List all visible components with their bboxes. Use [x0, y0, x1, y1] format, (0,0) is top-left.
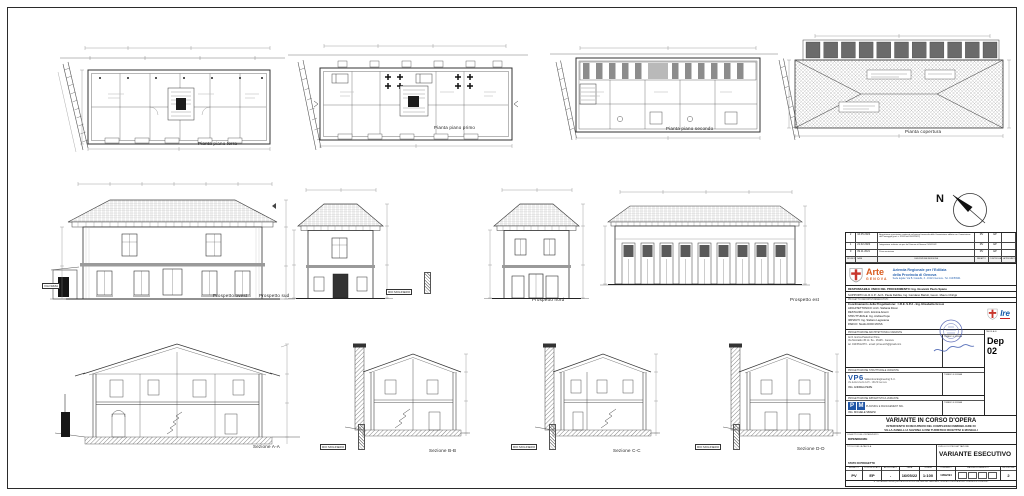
- rev-controllato: EP: [989, 243, 1003, 249]
- plan-first-floor-drawing: [288, 28, 528, 153]
- compass-n-letter: N: [936, 193, 944, 205]
- rio-molinero-label: RIO MOLINERO: [695, 444, 721, 450]
- stato-progetto-label: STATO DI PROGETTO: [846, 462, 936, 466]
- rio-molinero-label: RIO MOLINERO: [320, 444, 346, 450]
- caption-plan-roof: Pianta copertura: [905, 129, 941, 134]
- caption-section-dd: Sezione D-D: [797, 446, 825, 451]
- hatched-wall-mark: [549, 424, 556, 450]
- caption-plan-second: Pianta piano secondo: [666, 126, 713, 131]
- structural-engineer-name: ING. ANDREA PEPE: [848, 386, 940, 389]
- rev-desc: Prima emissione: [878, 250, 975, 256]
- caption-elevation-north: Prospetto nord: [532, 297, 564, 302]
- rev-redatto: RV: [975, 233, 989, 242]
- footer-formato: 1189x594: [937, 471, 955, 480]
- arte-genova-wordmark: Arte GENOVA: [866, 268, 888, 281]
- footer-revisione: 2: [1001, 471, 1016, 480]
- caption-elevation-east: Prospetto est: [790, 297, 819, 302]
- disclaimer-line: E' VIETATA A CHIUNQUE LA RIPRODUZIONE, A…: [846, 481, 1016, 485]
- rev-header: DESCRIZIONE REVISIONE: [878, 257, 975, 262]
- rev-redatto: RV: [975, 250, 989, 256]
- caption-section-bb: Sezione B-B: [429, 448, 456, 453]
- rev-controllato: EP: [989, 233, 1003, 242]
- rev-date: 21.02.2022: [856, 243, 878, 249]
- timbro-cell: TIMBRO E FIRMA: [942, 373, 984, 395]
- via-nizza-label: VIA NIZZA: [42, 283, 60, 289]
- rio-molinero-label: RIO MOLINERO: [386, 289, 412, 295]
- caption-section-aa: Sezione A-A: [253, 444, 280, 449]
- mep-engineer-name: ING. MICHELE SBARSI: [848, 411, 940, 414]
- rev-number: 0: [846, 250, 856, 256]
- rio-molinero-marker: RIO MOLINERO: [320, 424, 368, 458]
- ire-shield-icon: [987, 308, 998, 320]
- plan-roof-drawing: [775, 30, 1015, 142]
- footer-data: 16/05/22: [900, 471, 919, 480]
- rev-number: 2: [846, 233, 856, 242]
- rio-molinero-marker: RIO MOLINERO: [695, 424, 743, 458]
- elevation-west-drawing: [50, 172, 295, 302]
- agency-subtitle: Sede legale: Via B. Castello, 3 - 16121 …: [893, 277, 961, 280]
- caption-elevation-south: Prospetto sud: [259, 293, 289, 298]
- mep-contact: PM PLANNING E MANAGEMENT SRL ING. MICHEL…: [846, 401, 942, 415]
- stato-progetto-value: VARIANTE ESECUTIVO: [937, 449, 1016, 460]
- raggruppamento-boxes: [956, 471, 1000, 480]
- rev-header: REDATTO: [975, 257, 989, 262]
- titolo-livello-block: TITOLO DELLA TAVOLA STATO DI PROGETTO LI…: [846, 445, 1016, 467]
- rev-desc: Integrazione richiesta via pec dal Comun…: [878, 243, 975, 249]
- footer-controllato: EP: [863, 471, 881, 480]
- vp6-logo: VP6: [848, 373, 864, 382]
- plan-ground-floor-drawing: [50, 28, 285, 153]
- rio-molinero-label: RIO MOLINERO: [511, 444, 537, 450]
- tavola-number: Dep 02: [985, 334, 1016, 358]
- round-stamp-icon: [930, 318, 982, 358]
- elevation-east-drawing: [600, 182, 810, 306]
- rio-molinero-marker: RIO MOLINERO: [511, 424, 559, 458]
- caption-elevation-west: Prospetto ovest: [213, 293, 247, 298]
- architectural-drawing-sheet: RIO MOLINERO RIO MOLINERO RIO MOLINERO R…: [0, 0, 1024, 496]
- section-aa-drawing: [55, 322, 300, 452]
- caption-plan-ground: Pianta piano terra: [198, 141, 237, 146]
- ire-logo: Ire: [987, 308, 1010, 320]
- agency-title: Azienda Regionale per l'Edilizia della P…: [891, 268, 961, 280]
- rev-redatto: RV: [975, 243, 989, 249]
- agency-band: Arte GENOVA Azienda Regionale per l'Edil…: [846, 264, 1016, 286]
- structural-contact: VP6 Valtecnica Engineering S.r.l. Via de…: [846, 373, 942, 395]
- tavola-column: TAVOLA N. Dep 02: [984, 330, 1016, 415]
- rev-approvato: [1002, 233, 1016, 242]
- pm-logo: PM: [848, 402, 865, 410]
- footer-redatto: PV: [846, 471, 862, 480]
- project-subtitle: VILLA ZANELLI A SAVONA A FINI TURISTICO …: [846, 429, 1016, 433]
- caption-section-cc: Sezione C-C: [613, 448, 641, 453]
- signature-icon: [934, 345, 974, 352]
- hatched-wall-mark: [733, 424, 740, 450]
- title-block: 2 16.05.2022 Acquisizione prescrizioni c…: [845, 232, 1017, 487]
- rio-molinero-marker: RIO MOLINERO: [386, 286, 434, 306]
- mep-designer-section: PROGETTAZIONE IMPIANTISTICA VARIANTE PM …: [846, 396, 984, 415]
- oggetto-block: OGGETTO DELL'INTERVENTO DIPENDENZE: [846, 433, 1016, 445]
- plan-second-floor-drawing: [550, 34, 778, 144]
- rev-number: 1: [846, 243, 856, 249]
- footer-approvato: -: [882, 471, 899, 480]
- rev-header: DATA: [856, 257, 878, 262]
- rev-controllato: EP: [989, 250, 1003, 256]
- hatched-wall-mark: [358, 424, 365, 450]
- rev-approvato: [1002, 243, 1016, 249]
- timbro-cell: TIMBRO E FIRMA: [942, 401, 984, 415]
- rev-header: APPROVATO: [1002, 257, 1016, 262]
- footer-scala: 1:100: [920, 471, 936, 480]
- rev-date: 09.11.2021: [856, 250, 878, 256]
- structural-designer-section: PROGETTAZIONE STRUTTURALE VARIANTE VP6 V…: [846, 368, 984, 396]
- revision-table: 2 16.05.2022 Acquisizione prescrizioni c…: [846, 233, 1016, 264]
- rev-header: CONTROLLATO: [989, 257, 1003, 262]
- rev-header: REVISIONE: [846, 257, 856, 262]
- rev-desc: Acquisizione prescrizioni contenute nel …: [878, 233, 975, 242]
- rev-date: 16.05.2022: [856, 233, 878, 242]
- north-compass-icon: N: [928, 180, 1000, 236]
- architect-contact: Arch. Enrica Pastorino Prina Via Montald…: [846, 335, 942, 367]
- elevation-north-drawing: [484, 178, 589, 304]
- oggetto-value: DIPENDENZE: [846, 437, 1016, 441]
- arte-genova-logo: [849, 267, 863, 283]
- footer-table: REDATTOPV CONTROLLATOEP APPROVATO- DATA1…: [846, 467, 1016, 481]
- hatched-wall-mark: [424, 272, 431, 294]
- project-title-block: VARIANTE IN CORSO D'OPERA INTERVENTO DI …: [846, 416, 1016, 433]
- rev-approvato: [1002, 250, 1016, 256]
- caption-plan-first: Pianta piano primo: [434, 125, 475, 130]
- elevation-south-drawing: [288, 178, 393, 304]
